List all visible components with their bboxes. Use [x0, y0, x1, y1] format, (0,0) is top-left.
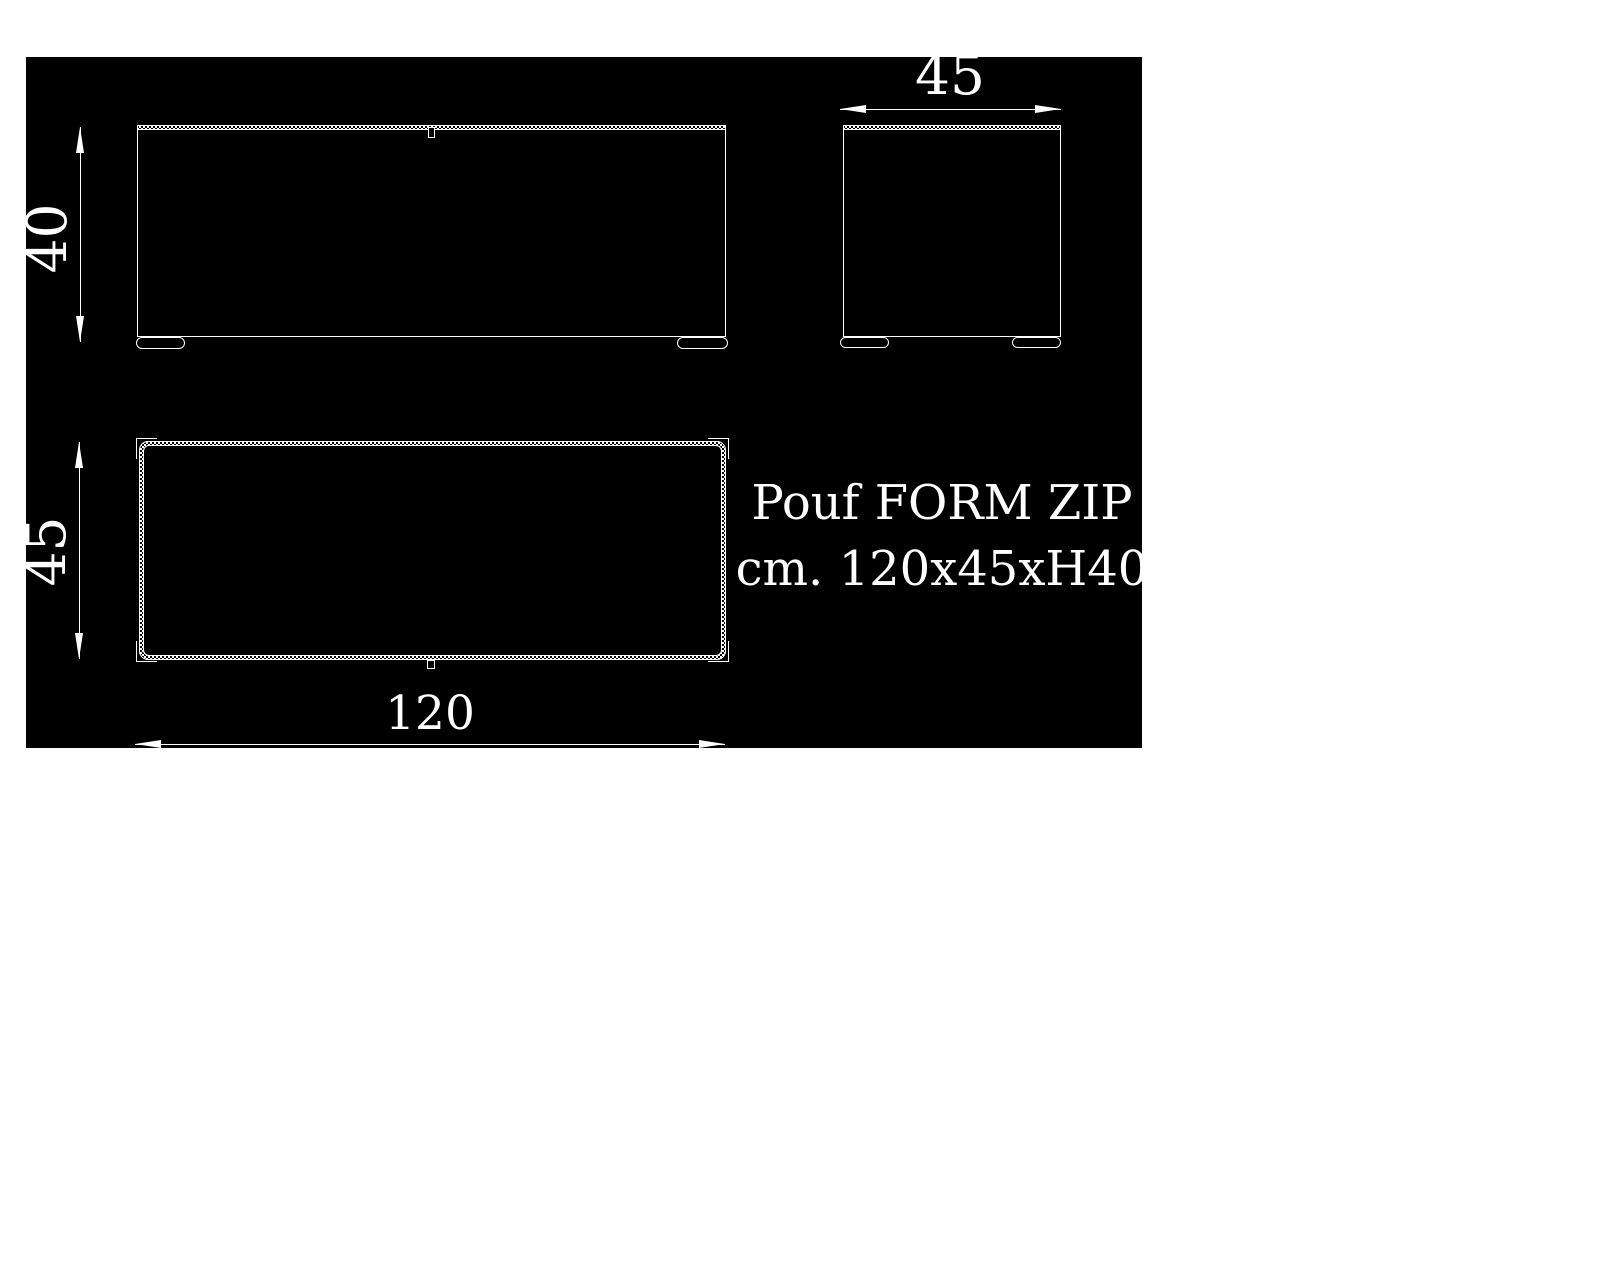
front-view-foot-right: [677, 337, 728, 349]
dim-side-width-line: [840, 109, 1061, 110]
dim-side-width-arrow-right-icon: [1035, 105, 1061, 113]
dim-height-line: [80, 127, 81, 342]
side-view-foot-left: [840, 337, 889, 348]
page: 40 45 45 120 Pouf FORM ZIP cm. 120x45xH4…: [0, 0, 1600, 1280]
side-view-top-seam: [843, 125, 1061, 130]
front-view-body: [137, 125, 726, 337]
dim-width-arrow-right-icon: [699, 740, 725, 748]
front-view-zip-pull: [428, 127, 435, 138]
dim-width-line: [135, 744, 725, 745]
top-view-body: [143, 445, 722, 656]
product-size-text: cm. 120x45xH40: [702, 536, 1182, 602]
top-view-zip-pull: [427, 660, 435, 669]
dim-side-width-arrow-left-icon: [840, 105, 866, 113]
side-view-body: [843, 125, 1061, 337]
dim-top-depth-label: 45: [19, 511, 74, 592]
dim-height-label: 40: [20, 198, 75, 279]
product-caption: Pouf FORM ZIP cm. 120x45xH40: [702, 470, 1182, 602]
dim-width-label: 120: [380, 690, 480, 737]
product-name-text: Pouf FORM ZIP: [702, 470, 1182, 536]
dim-width-arrow-left-icon: [135, 740, 161, 748]
technical-drawing-canvas: 40 45 45 120 Pouf FORM ZIP cm. 120x45xH4…: [26, 57, 1142, 748]
top-view-zipper-seam: [139, 441, 726, 660]
dim-height-arrow-down-icon: [76, 316, 84, 342]
dim-height-arrow-up-icon: [76, 127, 84, 153]
dim-top-depth-arrow-down-icon: [75, 633, 83, 659]
dim-side-width-label: 45: [915, 48, 985, 103]
front-view-foot-left: [136, 337, 185, 349]
dim-top-depth-line: [79, 442, 80, 659]
side-view-foot-right: [1012, 337, 1061, 348]
dim-top-depth-arrow-up-icon: [75, 442, 83, 468]
